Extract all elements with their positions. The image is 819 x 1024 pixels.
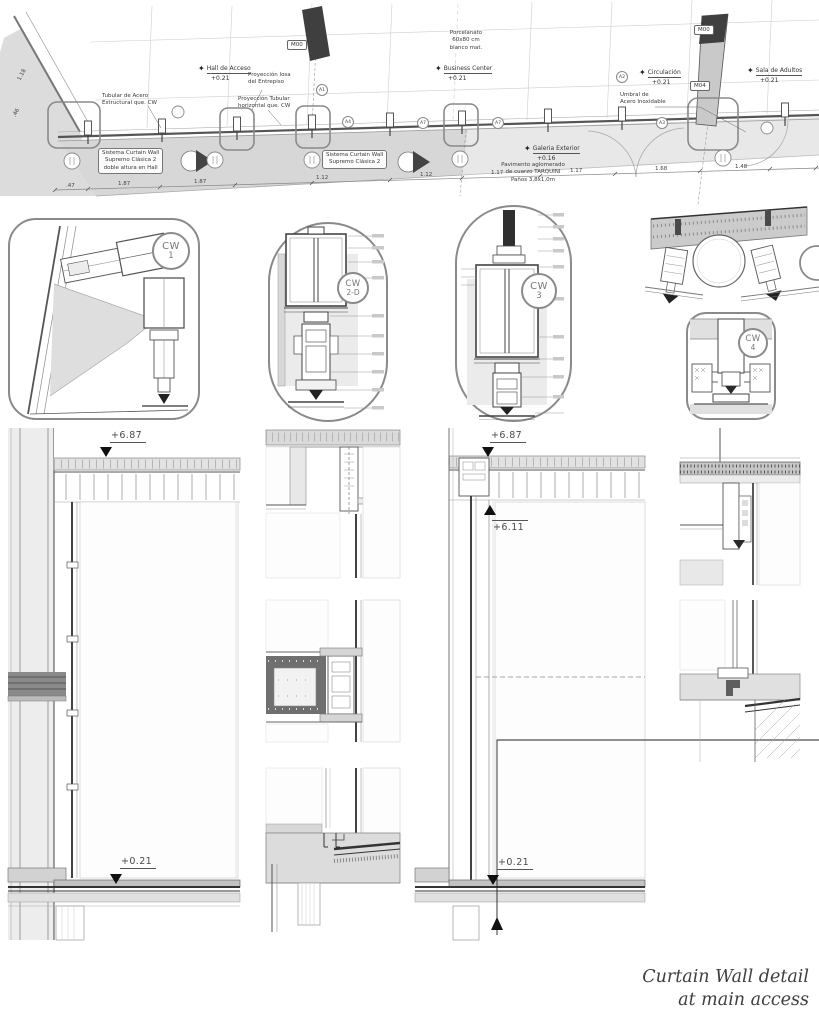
note-sistema-2: Sistema Curtain Wall Supremo Clásica 2 xyxy=(322,150,387,169)
level-right-bottom-arrow xyxy=(487,875,499,885)
plan-dim: 1.68 xyxy=(655,166,667,172)
plan-dim: 1.87 xyxy=(194,179,206,185)
sheet-title-line2: at main access xyxy=(642,989,809,1012)
room-label-galeria: ✦Galeria Exterior +0.16 xyxy=(524,144,580,163)
plan-dim: 1.12 xyxy=(316,175,328,181)
note-tubular-acero: Tubular de Acero Estructural que. CW xyxy=(102,93,157,108)
plan-dim: 1.48 xyxy=(735,164,747,170)
plan-dim: .47 xyxy=(66,183,75,189)
grid-bubble-a3: A3 xyxy=(656,117,668,129)
sheet-title: Curtain Wall detail at main access xyxy=(642,966,809,1012)
grid-bubble-a7a: A7 xyxy=(417,117,429,129)
sheet-title-line1: Curtain Wall detail xyxy=(642,966,809,989)
note-porcelanato: Porcelanato 60x80 cm blanco mat. xyxy=(438,30,494,52)
note-proy-tubular: Proyección Tubular horizontal que. CW xyxy=(238,96,290,111)
room-label-sala: ✦Sala de Adultos +0.21 xyxy=(747,66,802,85)
star-icon: ✦ xyxy=(435,64,442,73)
note-proy-losa: Proyección losa del Entrepiso xyxy=(248,72,291,87)
level-left-top: +6.87 xyxy=(110,430,146,443)
room-label-business: ✦Business Center +0.21 xyxy=(435,64,492,83)
note-umbral: Umbral de Acero Inoxidable xyxy=(620,92,666,107)
room-label-circulacion: ✦Circulación +0.21 xyxy=(639,68,681,87)
level-right-mid-arrow xyxy=(484,505,496,515)
plan-dim: 1.17 xyxy=(491,170,503,176)
drawing-sheet: { "sheet": { "title_line1": "Curtain Wal… xyxy=(0,0,819,1024)
level-left-top-arrow xyxy=(100,447,112,457)
plan-dim: 1.17 xyxy=(570,168,582,174)
star-icon: ✦ xyxy=(524,144,531,153)
cw3-bubble: CW3 xyxy=(521,273,557,309)
note-sistema-hall: Sistema Curtain Wall Supremo Clásica 2 d… xyxy=(98,148,163,174)
star-icon: ✦ xyxy=(198,64,205,73)
level-right-mid: +6.11 xyxy=(492,520,528,533)
level-left-bottom-arrow xyxy=(110,874,122,884)
grid-bubble-a2: A2 xyxy=(616,71,628,83)
level-right-bottom: +0.21 xyxy=(497,857,533,870)
cw4-bubble: CW4 xyxy=(738,328,768,358)
grid-bubble-a1: A1 xyxy=(316,84,328,96)
level-right-top: +6.87 xyxy=(490,430,526,443)
note-pavimento: Pavimento aglomerado de cuarzo TARQUINI … xyxy=(498,162,568,184)
plan-dim: 1.87 xyxy=(118,181,130,187)
level-left-bottom: +0.21 xyxy=(120,856,156,869)
star-icon: ✦ xyxy=(639,68,646,77)
cw2d-drawing xyxy=(270,224,386,420)
tag-m00-a: M00 xyxy=(287,40,307,50)
grid-bubble-a4: A4 xyxy=(342,116,354,128)
mid-details-drawing xyxy=(266,428,400,940)
level-right-top-arrow xyxy=(482,447,494,457)
room-label-hall: ✦Hall de Acceso +0.21 xyxy=(198,64,251,83)
corner-detail-drawing xyxy=(645,205,819,307)
grid-bubble-a7b: A7 xyxy=(492,117,504,129)
star-icon: ✦ xyxy=(747,66,754,75)
tag-m00-b: M00 xyxy=(694,25,714,35)
cw1-bubble: CW1 xyxy=(152,232,190,270)
right-sections-drawing xyxy=(415,428,819,940)
cw2d-bubble: CW2-D xyxy=(337,272,369,304)
plan-dim: 1.12 xyxy=(420,172,432,178)
cw3-drawing xyxy=(457,207,570,420)
tag-m04: M04 xyxy=(690,81,710,91)
